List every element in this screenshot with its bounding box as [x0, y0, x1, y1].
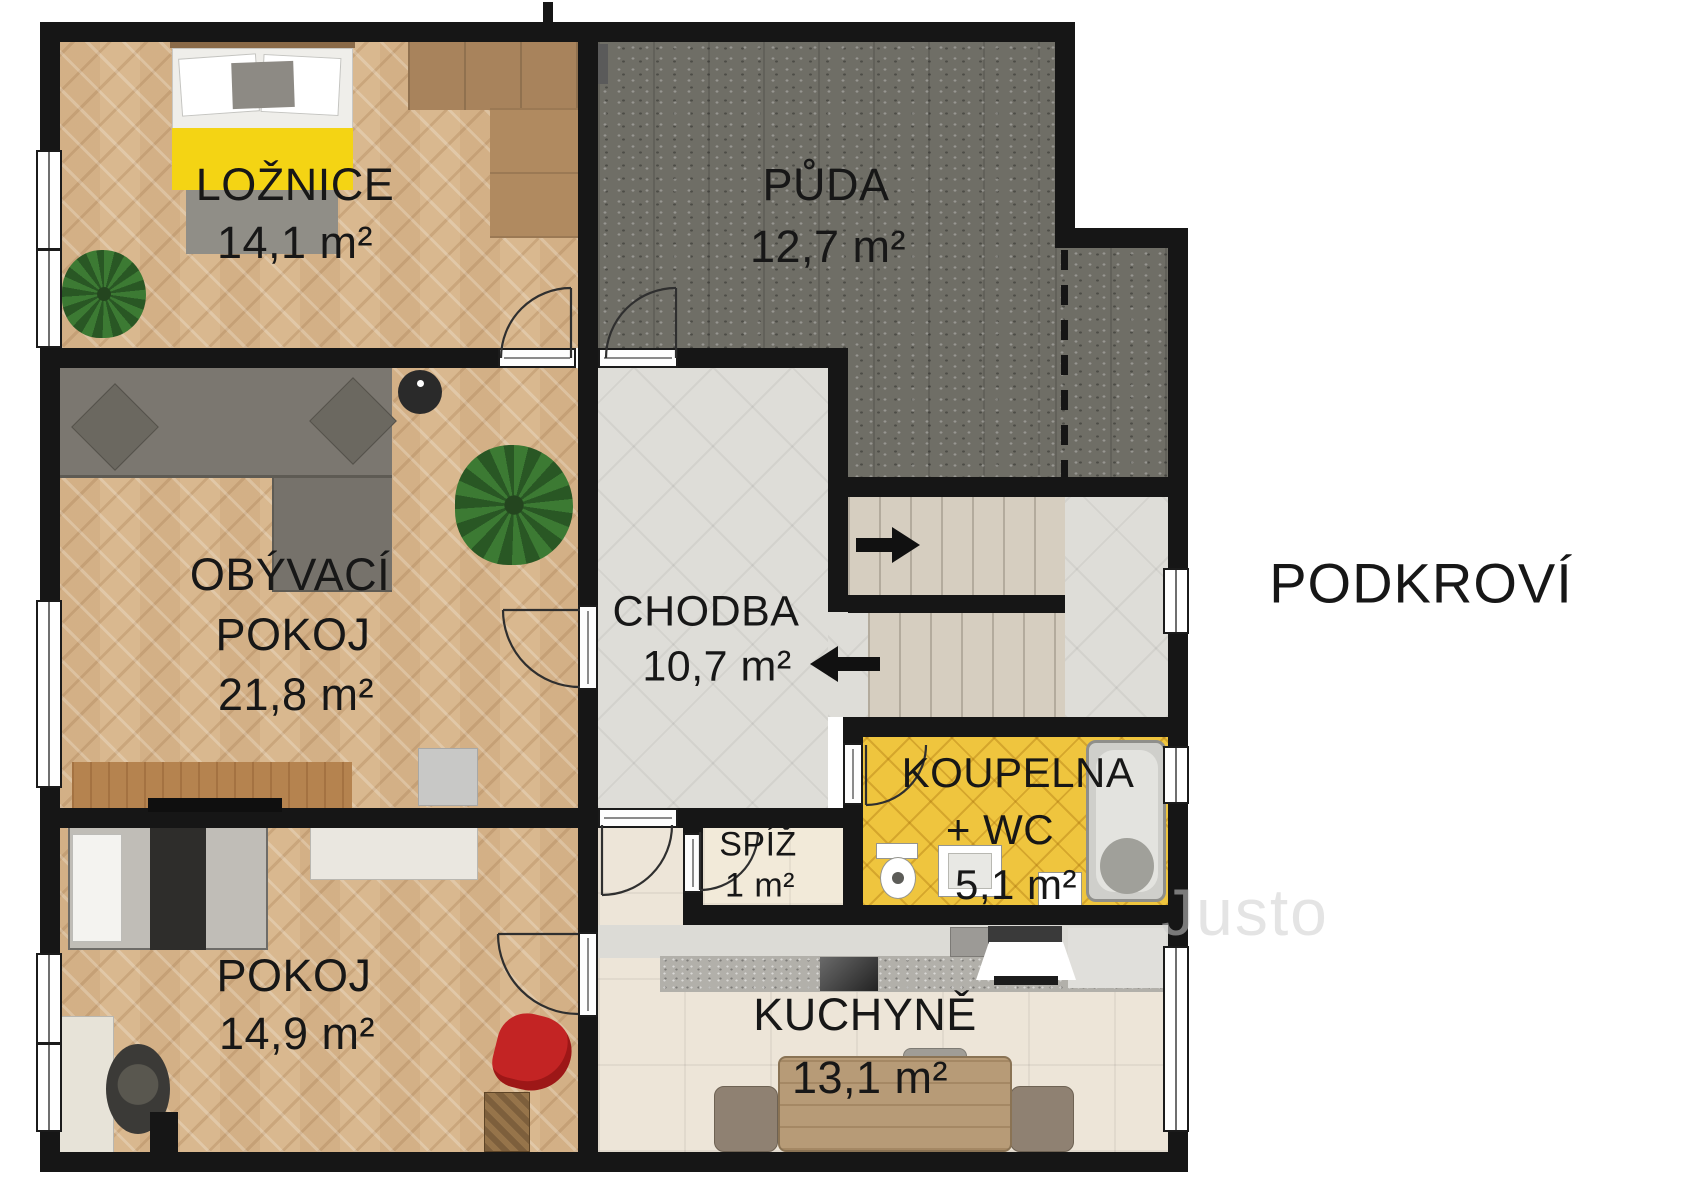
label-spiz-area: 1 m² [725, 867, 795, 906]
stairs-down-arrow-head-icon [810, 646, 838, 682]
label-koupelna-area: 5,1 m² [955, 861, 1077, 909]
label-kuchyne-name: KUCHYNĚ [753, 989, 977, 1041]
stairs-down-arrow-icon [838, 657, 880, 671]
label-spiz-name: SPÍŽ [719, 826, 797, 865]
label-loznice-name: LOŽNICE [196, 159, 395, 211]
label-loznice-area: 14,1 m² [217, 217, 373, 269]
watermark: Justo [1161, 874, 1329, 950]
floor-title: PODKROVÍ [1269, 551, 1573, 616]
door-arc-pokoj [498, 934, 578, 1014]
label-pokoj-name: POKOJ [216, 950, 371, 1002]
label-chodba-area: 10,7 m² [642, 643, 791, 692]
label-koupelna-line1: KOUPELNA [902, 749, 1135, 797]
floor-plan-canvas: LOŽNICE 14,1 m² PŮDA 12,7 m² OBÝVACÍ POK… [0, 0, 1697, 1200]
stairs-up-arrow-icon [856, 538, 892, 552]
label-pokoj-area: 14,9 m² [219, 1008, 375, 1060]
stairs-up-arrow-head-icon [892, 527, 920, 563]
label-kuchyne-area: 13,1 m² [792, 1052, 948, 1104]
door-arc-obyvaci [503, 610, 580, 687]
door-arc-loznice [501, 288, 571, 358]
door-arc-kuchyne [602, 825, 672, 895]
label-chodba-name: CHODBA [613, 588, 800, 637]
label-koupelna-line2: + WC [946, 806, 1054, 854]
label-obyvaci-area: 21,8 m² [218, 669, 374, 721]
label-puda-area: 12,7 m² [750, 221, 906, 273]
label-puda-name: PŮDA [762, 159, 889, 211]
label-obyvaci-line2: POKOJ [215, 609, 370, 661]
door-arc-puda [606, 288, 676, 358]
label-obyvaci-line1: OBÝVACÍ [190, 549, 390, 601]
